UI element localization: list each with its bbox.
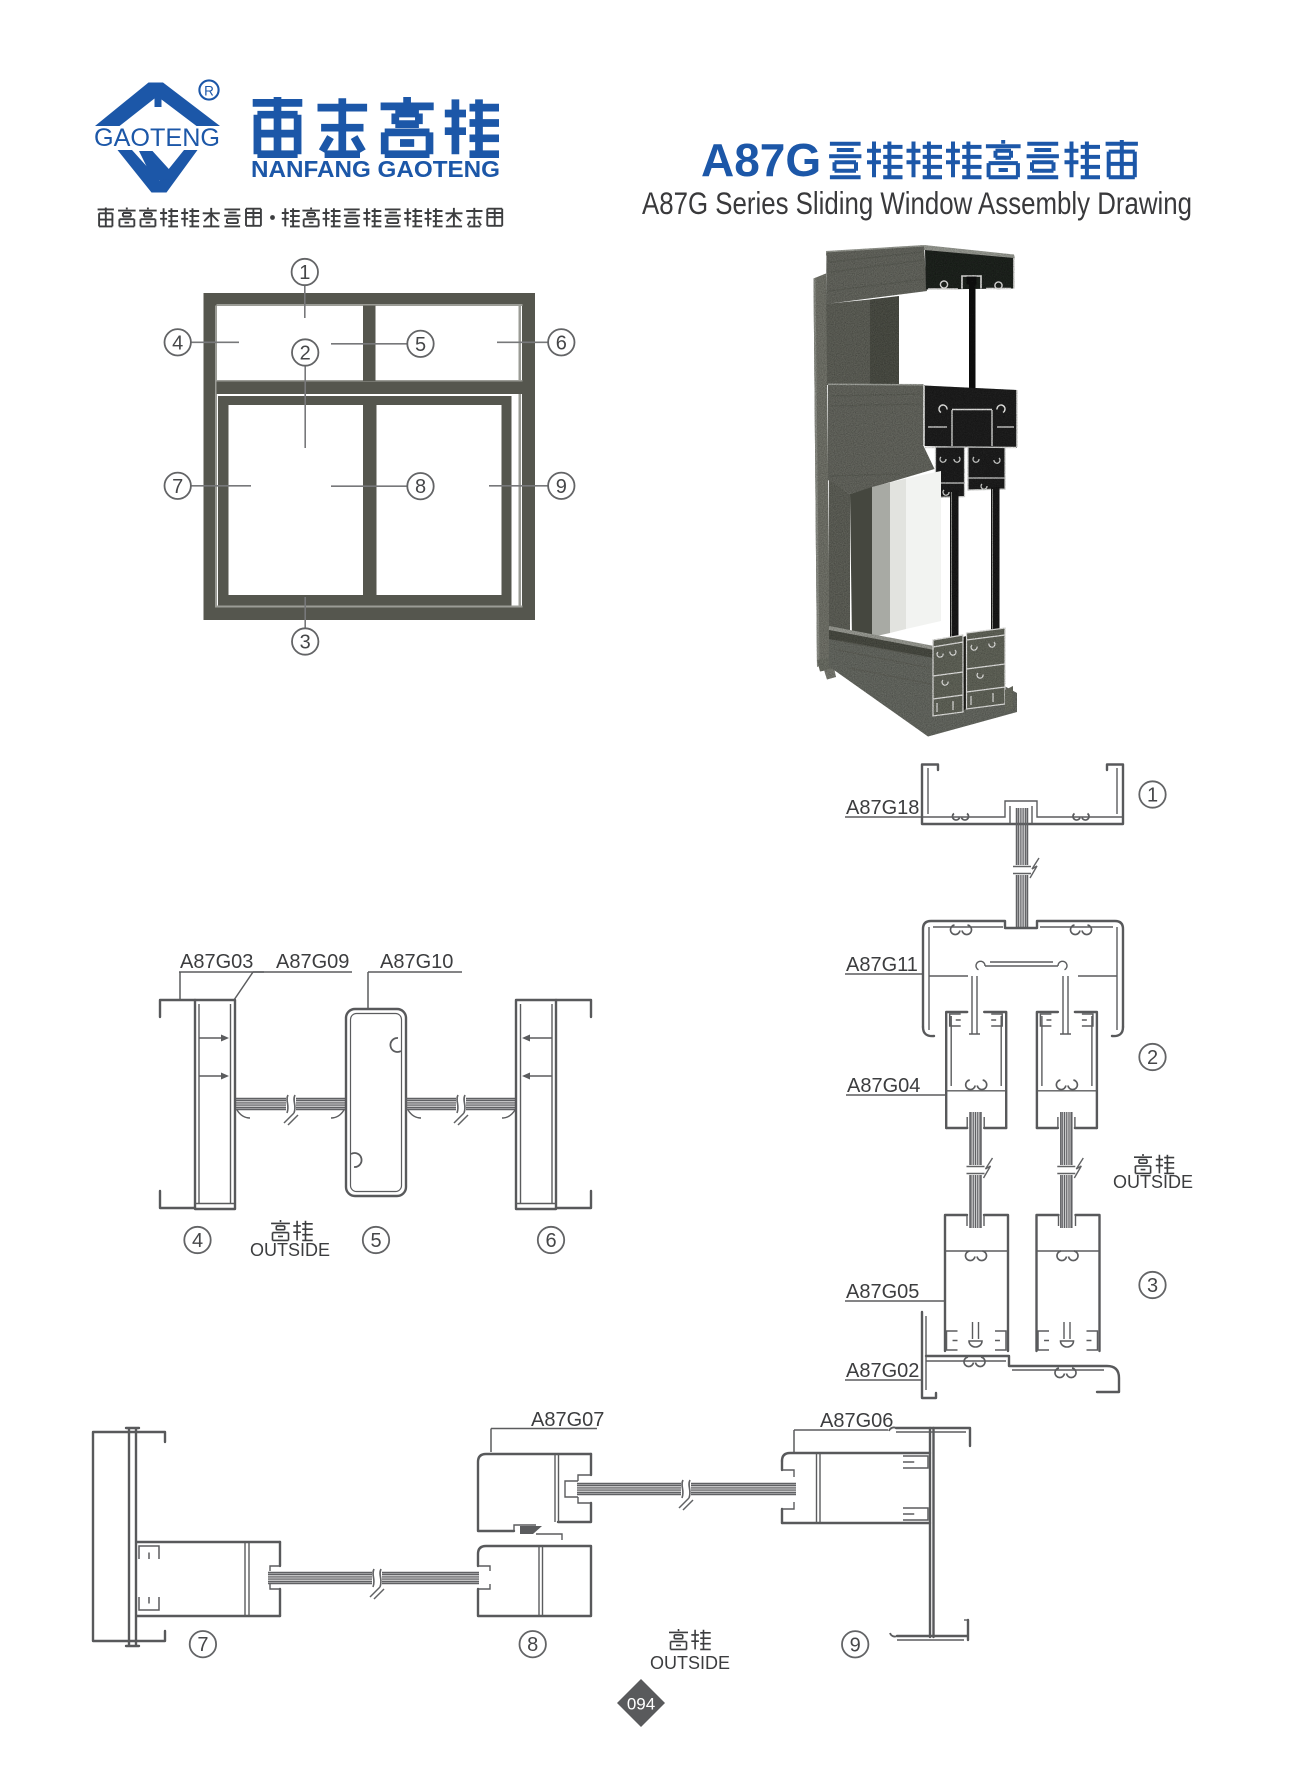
svg-text:GAOTENG: GAOTENG xyxy=(94,124,220,152)
svg-text:3: 3 xyxy=(1147,1275,1158,1297)
svg-text:A87G Series Sliding Window Ass: A87G Series Sliding Window Assembly Draw… xyxy=(642,185,1192,221)
svg-text:OUTSIDE: OUTSIDE xyxy=(650,1653,730,1673)
svg-text:5: 5 xyxy=(370,1230,381,1252)
svg-text:8: 8 xyxy=(415,476,426,498)
svg-text:2: 2 xyxy=(300,343,311,365)
svg-text:4: 4 xyxy=(192,1230,203,1252)
svg-text:A87G03: A87G03 xyxy=(180,951,253,973)
svg-text:6: 6 xyxy=(545,1230,556,1252)
svg-text:NANFANG GAOTENG: NANFANG GAOTENG xyxy=(251,156,500,182)
svg-text:A87G: A87G xyxy=(701,134,821,186)
svg-text:OUTSIDE: OUTSIDE xyxy=(1113,1172,1193,1192)
svg-text:A87G07: A87G07 xyxy=(531,1409,604,1431)
svg-text:7: 7 xyxy=(197,1634,208,1656)
svg-text:A87G11: A87G11 xyxy=(846,954,918,976)
svg-text:OUTSIDE: OUTSIDE xyxy=(250,1240,330,1260)
svg-text:7: 7 xyxy=(172,476,183,498)
svg-text:A87G09: A87G09 xyxy=(276,951,349,973)
svg-text:A87G10: A87G10 xyxy=(380,951,453,973)
svg-text:6: 6 xyxy=(556,332,567,354)
svg-text:2: 2 xyxy=(1147,1047,1158,1069)
svg-text:5: 5 xyxy=(415,334,426,356)
svg-text:1: 1 xyxy=(1147,785,1158,807)
svg-text:4: 4 xyxy=(172,332,183,354)
svg-text:A87G02: A87G02 xyxy=(846,1360,919,1382)
svg-text:A87G04: A87G04 xyxy=(847,1075,920,1097)
svg-text:094: 094 xyxy=(627,1695,655,1714)
svg-text:9: 9 xyxy=(850,1634,861,1656)
svg-text:R: R xyxy=(204,84,214,99)
svg-text:A87G18: A87G18 xyxy=(846,797,919,819)
svg-text:8: 8 xyxy=(527,1634,538,1656)
svg-text:9: 9 xyxy=(556,476,567,498)
svg-text:A87G05: A87G05 xyxy=(846,1281,919,1303)
svg-text:A87G06: A87G06 xyxy=(820,1410,893,1432)
svg-text:3: 3 xyxy=(300,632,311,654)
svg-text:1: 1 xyxy=(299,262,310,284)
